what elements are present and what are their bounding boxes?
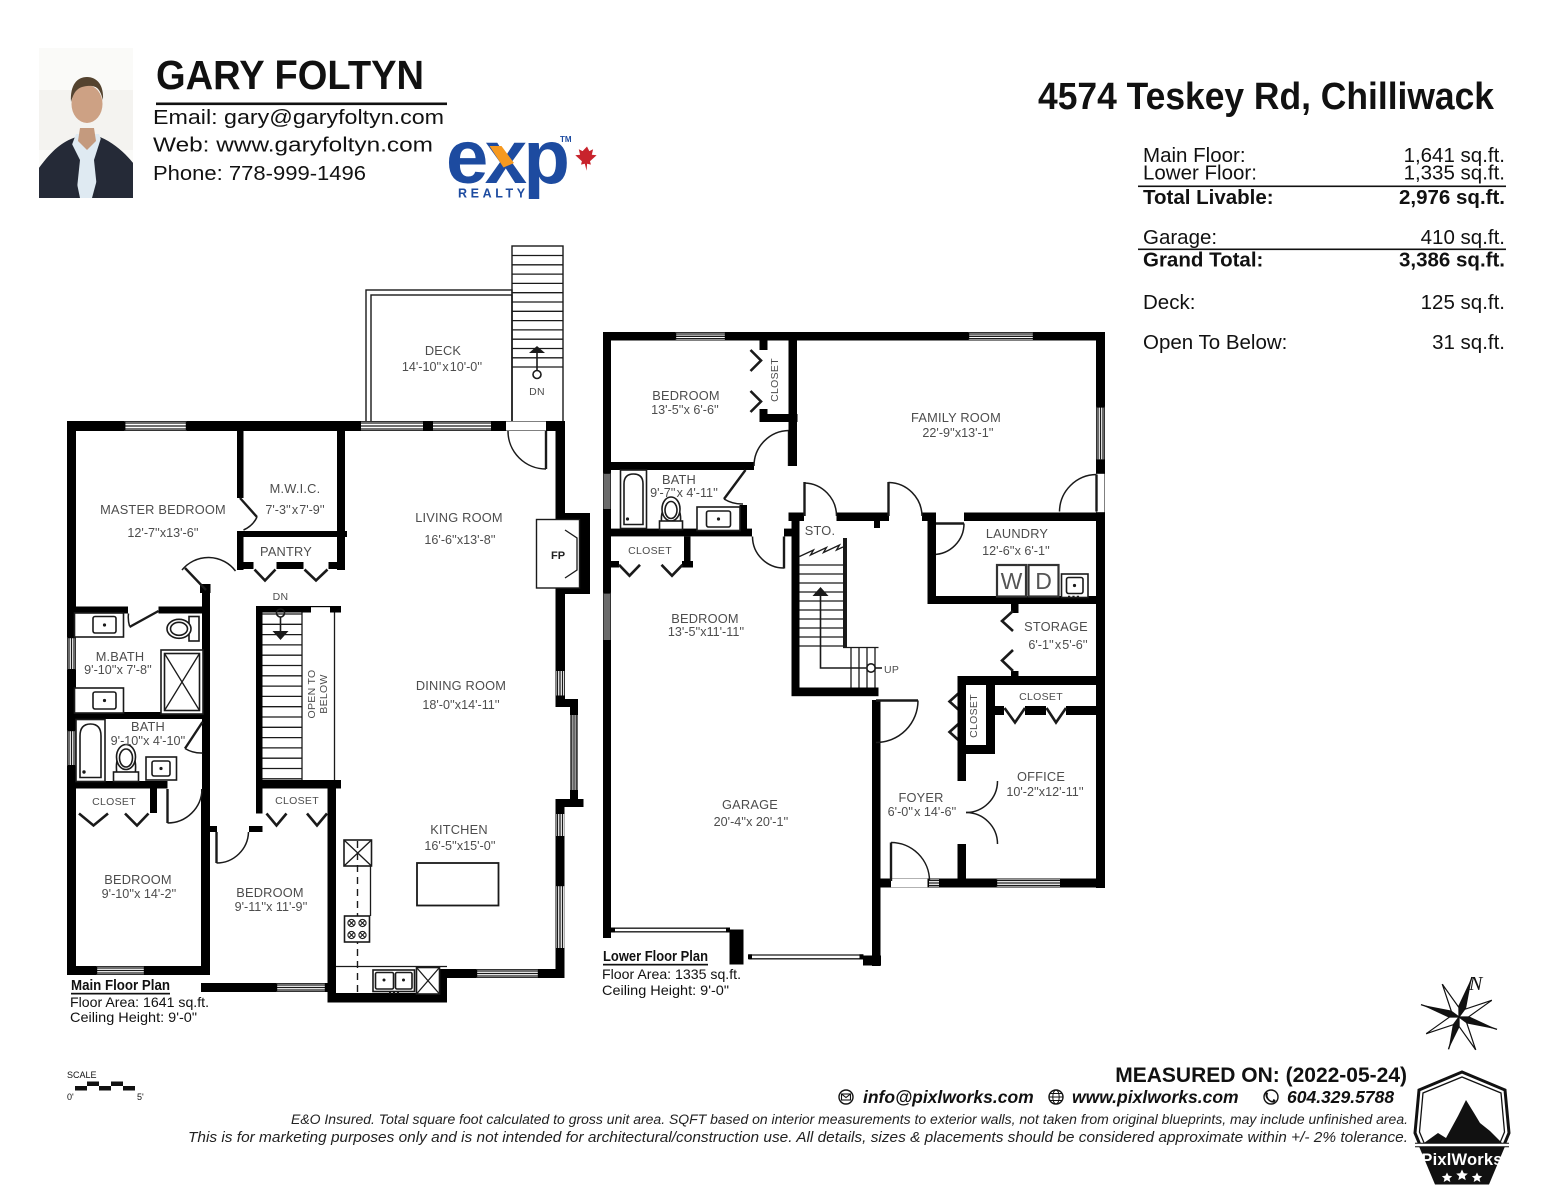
svg-text:7'-3'' x 7'-9'': 7'-3'' x 7'-9''	[265, 503, 324, 517]
svg-text:BEDROOM: BEDROOM	[671, 611, 739, 626]
svg-text:OPEN TO: OPEN TO	[306, 670, 318, 719]
svg-text:DINING ROOM: DINING ROOM	[416, 678, 506, 693]
svg-text:Grand Total:: Grand Total:	[1143, 249, 1263, 272]
svg-text:CLOSET: CLOSET	[968, 694, 980, 738]
svg-text:MASTER BEDROOM: MASTER BEDROOM	[100, 502, 226, 517]
svg-text:6'-0'' x 14'-6'': 6'-0'' x 14'-6''	[888, 805, 957, 819]
svg-text:CLOSET: CLOSET	[628, 545, 672, 557]
svg-text:604.329.5788: 604.329.5788	[1287, 1087, 1394, 1107]
svg-text:CLOSET: CLOSET	[1019, 691, 1063, 703]
svg-text:CLOSET: CLOSET	[275, 795, 319, 807]
svg-text:BATH: BATH	[131, 719, 165, 734]
svg-text:Main Floor Plan: Main Floor Plan	[71, 978, 170, 994]
svg-text:W: W	[1001, 568, 1023, 594]
svg-text:STORAGE: STORAGE	[1024, 619, 1088, 634]
svg-text:2,976 sq.ft.: 2,976 sq.ft.	[1399, 186, 1505, 209]
svg-text:12'-7''x13'-6'': 12'-7''x13'-6''	[127, 526, 198, 540]
svg-text:GARAGE: GARAGE	[722, 797, 778, 812]
svg-text:BELOW: BELOW	[318, 674, 330, 713]
svg-text:3,386 sq.ft.: 3,386 sq.ft.	[1399, 249, 1505, 272]
svg-text:E&O Insured. Total square foo: E&O Insured. Total square foot calculate…	[291, 1112, 1408, 1127]
svg-text:Phone: 778-999-1496: Phone: 778-999-1496	[153, 163, 366, 185]
svg-text:CLOSET: CLOSET	[92, 796, 136, 808]
svg-text:4574 Teskey Rd, Chilliwack: 4574 Teskey Rd, Chilliwack	[1038, 76, 1495, 118]
svg-text:Floor Area: 1641 sq.ft.: Floor Area: 1641 sq.ft.	[70, 994, 209, 1010]
svg-text:12'-6''x 6'-1'': 12'-6''x 6'-1''	[982, 544, 1050, 558]
svg-text:16'-5''x15'-0'': 16'-5''x15'-0''	[424, 839, 495, 853]
svg-text:STO.: STO.	[805, 523, 835, 538]
svg-text:BATH: BATH	[662, 472, 696, 487]
svg-text:LIVING ROOM: LIVING ROOM	[415, 510, 503, 525]
svg-text:This is for marketing purposes: This is for marketing purposes only and …	[188, 1130, 1408, 1146]
svg-text:REALTY: REALTY	[458, 187, 529, 201]
svg-text:125 sq.ft.: 125 sq.ft.	[1421, 291, 1505, 314]
svg-text:FP: FP	[551, 550, 565, 562]
svg-text:info@pixlworks.com: info@pixlworks.com	[863, 1087, 1034, 1107]
svg-text:KITCHEN: KITCHEN	[430, 822, 488, 837]
svg-text:31 sq.ft.: 31 sq.ft.	[1432, 331, 1505, 354]
svg-text:DECK: DECK	[425, 343, 462, 358]
svg-text:M.BATH: M.BATH	[96, 649, 145, 664]
svg-text:5': 5'	[137, 1092, 144, 1102]
svg-text:DN: DN	[529, 386, 545, 398]
svg-text:0': 0'	[67, 1092, 74, 1102]
svg-text:Lower Floor Plan: Lower Floor Plan	[603, 949, 708, 965]
svg-text:CLOSET: CLOSET	[769, 358, 781, 402]
svg-text:GARY FOLTYN: GARY FOLTYN	[156, 52, 424, 98]
svg-text:6'-1'' x 5'-6'': 6'-1'' x 5'-6''	[1028, 638, 1087, 652]
svg-text:Lower Floor:: Lower Floor:	[1143, 162, 1257, 185]
svg-text:9'-10''x 7'-8'': 9'-10''x 7'-8''	[84, 663, 152, 677]
svg-text:410 sq.ft.: 410 sq.ft.	[1421, 226, 1505, 249]
svg-text:Web: www.garyfoltyn.com: Web: www.garyfoltyn.com	[153, 135, 433, 157]
svg-text:OFFICE: OFFICE	[1017, 769, 1065, 784]
svg-text:M.W.I.C.: M.W.I.C.	[270, 481, 321, 496]
svg-text:Open To Below:: Open To Below:	[1143, 331, 1287, 354]
svg-text:Ceiling Height: 9'-0": Ceiling Height: 9'-0"	[602, 982, 729, 998]
svg-text:Floor Area: 1335 sq.ft.: Floor Area: 1335 sq.ft.	[602, 966, 741, 982]
svg-text:BEDROOM: BEDROOM	[236, 885, 304, 900]
svg-text:Deck:: Deck:	[1143, 291, 1195, 314]
svg-text:9'-7'' x 4'-11'': 9'-7'' x 4'-11''	[650, 486, 718, 500]
svg-text:13'-5''x 6'-6'': 13'-5''x 6'-6''	[651, 403, 719, 417]
svg-text:TM: TM	[560, 135, 572, 144]
svg-text:Email: gary@garyfoltyn.com: Email: gary@garyfoltyn.com	[153, 107, 444, 129]
svg-text:FOYER: FOYER	[898, 790, 943, 805]
svg-text:PANTRY: PANTRY	[260, 544, 312, 559]
svg-text:MEASURED ON: (2022-05-24): MEASURED ON: (2022-05-24)	[1115, 1064, 1407, 1087]
svg-text:18'-0''x14'-11'': 18'-0''x14'-11''	[422, 698, 499, 712]
svg-text:9'-10''x 4'-10'': 9'-10''x 4'-10''	[111, 734, 186, 748]
svg-text:9'-11''x 11'-9'': 9'-11''x 11'-9''	[235, 900, 308, 914]
svg-text:N: N	[1468, 973, 1484, 995]
svg-text:13'-5''x11'-11'': 13'-5''x11'-11''	[668, 625, 744, 639]
svg-text:D: D	[1035, 568, 1052, 594]
svg-text:BEDROOM: BEDROOM	[652, 388, 720, 403]
svg-text:www.pixlworks.com: www.pixlworks.com	[1072, 1087, 1239, 1107]
svg-text:14'-10'' x 10'-0'': 14'-10'' x 10'-0''	[402, 360, 482, 374]
svg-text:DN: DN	[273, 591, 289, 603]
svg-text:1,335 sq.ft.: 1,335 sq.ft.	[1404, 162, 1505, 185]
svg-text:Ceiling Height: 9'-0": Ceiling Height: 9'-0"	[70, 1009, 197, 1025]
svg-text:9'-10''x 14'-2'': 9'-10''x 14'-2''	[102, 887, 177, 901]
svg-text:PixlWorks: PixlWorks	[1421, 1151, 1502, 1169]
svg-text:Total Livable:: Total Livable:	[1143, 186, 1274, 209]
svg-text:16'-6''x13'-8'': 16'-6''x13'-8''	[424, 533, 495, 547]
svg-text:22'-9''x13'-1'': 22'-9''x13'-1''	[922, 426, 993, 440]
svg-text:10'-2''x12'-11'': 10'-2''x12'-11''	[1006, 785, 1083, 799]
svg-text:UP: UP	[884, 664, 899, 676]
svg-text:SCALE: SCALE	[67, 1070, 97, 1080]
svg-text:LAUNDRY: LAUNDRY	[986, 526, 1049, 541]
svg-text:BEDROOM: BEDROOM	[104, 872, 172, 887]
svg-text:20'-4''x 20'-1'': 20'-4''x 20'-1''	[714, 815, 789, 829]
svg-text:FAMILY ROOM: FAMILY ROOM	[911, 410, 1001, 425]
svg-text:Garage:: Garage:	[1143, 226, 1217, 249]
